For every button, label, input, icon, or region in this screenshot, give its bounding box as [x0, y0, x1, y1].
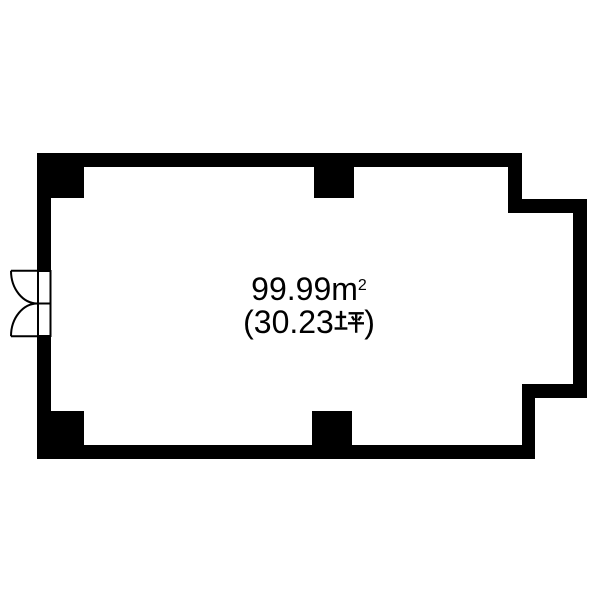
area-m2-unit-superscript: 2 [358, 277, 367, 294]
area-m2-line: 99.99m2 [159, 269, 459, 306]
area-tsubo-line: (30.23) [159, 306, 459, 339]
area-m2-unit: m [331, 271, 358, 307]
area-tsubo-prefix: (30.23 [243, 304, 334, 340]
area-tsubo-suffix: ) [364, 304, 375, 340]
pillar-bottom-left [37, 411, 84, 459]
area-m2-value: 99.99 [251, 271, 331, 307]
door-swing-arc-top [11, 271, 38, 304]
pillar-top-center [314, 153, 354, 198]
tsubo-character-glyph [334, 306, 364, 336]
door-swing-arc-bottom [11, 303, 38, 336]
area-label: 99.99m2 (30.23) [159, 269, 459, 339]
pillar-bottom-center [312, 411, 352, 459]
floorplan-canvas: 99.99m2 (30.23) [0, 0, 600, 600]
pillar-top-left [37, 153, 84, 198]
double-swing-door-icon [11, 270, 53, 337]
